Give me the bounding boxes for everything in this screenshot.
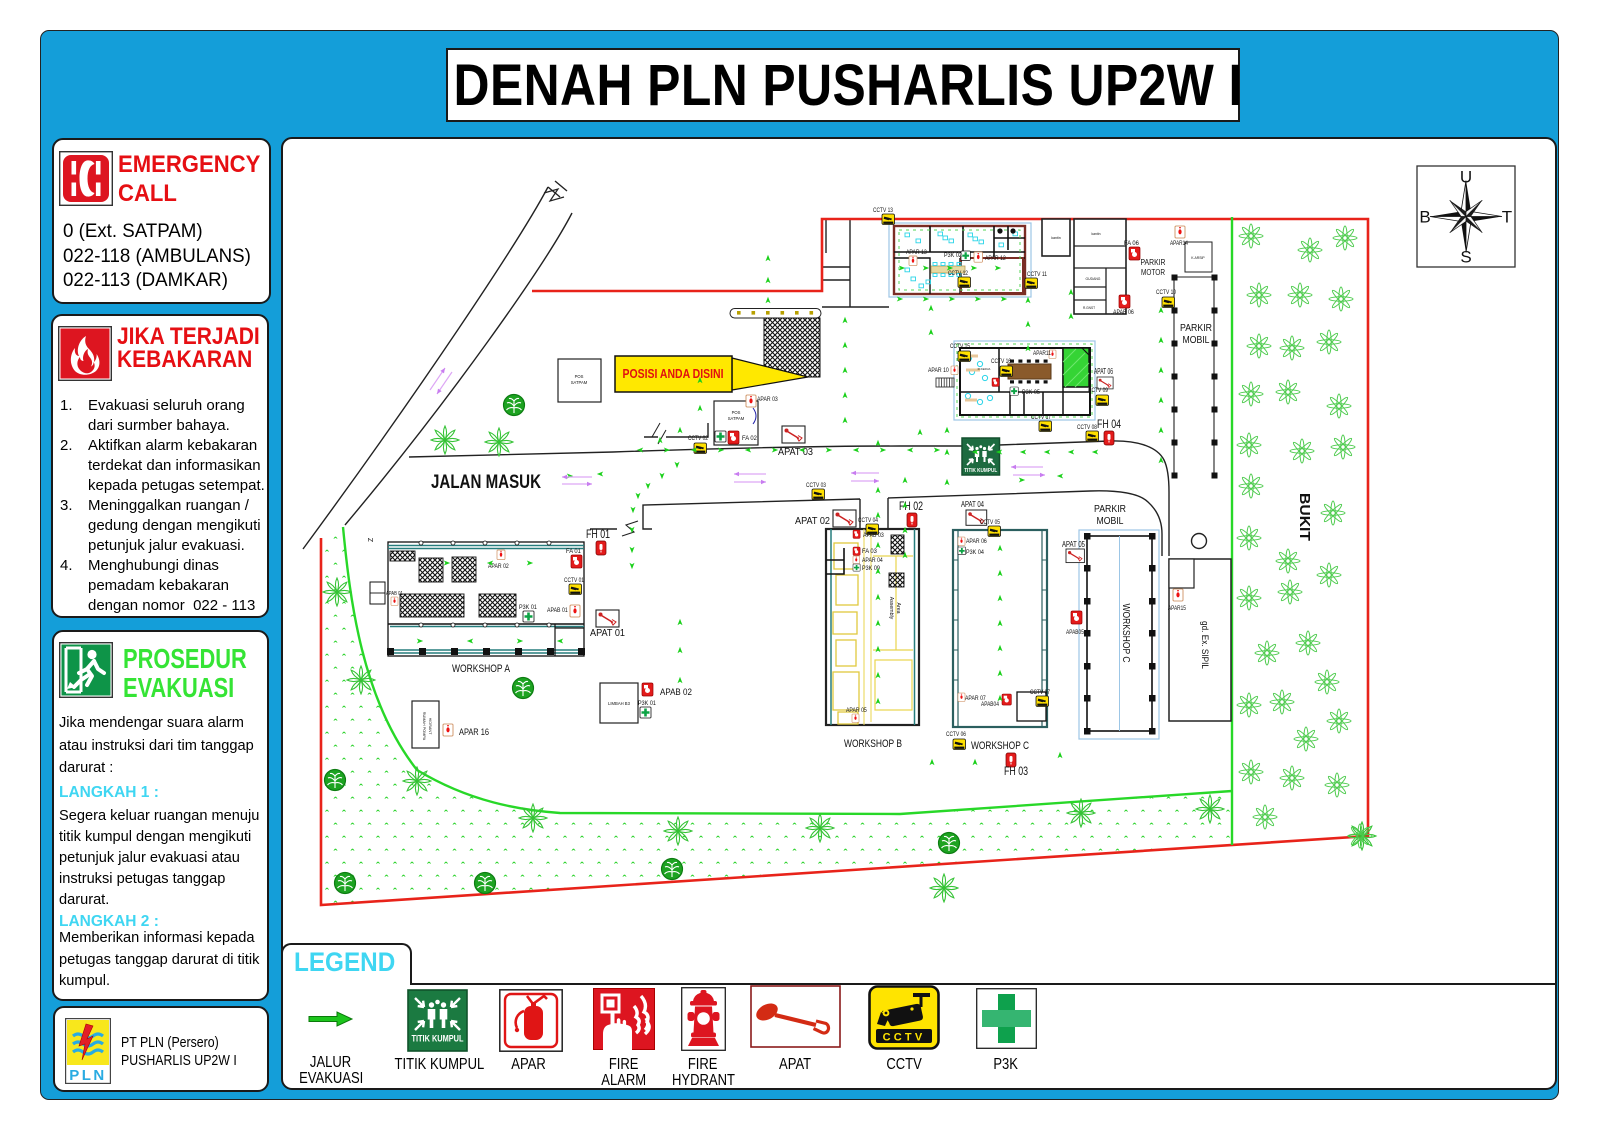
svg-text:T: T xyxy=(1502,208,1512,227)
svg-text:gd. Ex. SIPIL: gd. Ex. SIPIL xyxy=(1200,621,1210,669)
svg-text:APAR 12: APAR 12 xyxy=(985,255,1006,262)
svg-text:TITIK KUMPUL: TITIK KUMPUL xyxy=(412,1034,464,1045)
svg-text:FA 06: FA 06 xyxy=(1124,240,1139,247)
svg-text:GUDANG: GUDANG xyxy=(1086,277,1101,281)
svg-text:PARKIR: PARKIR xyxy=(1094,504,1126,515)
svg-text:APAB04: APAB04 xyxy=(981,701,999,708)
svg-text:MOTOR: MOTOR xyxy=(1141,267,1165,277)
svg-text:APAR 04: APAR 04 xyxy=(862,557,883,564)
svg-text:PLN: PLN xyxy=(69,1067,107,1084)
svg-text:APAR 16: APAR 16 xyxy=(459,727,489,738)
svg-text:CCTV 05: CCTV 05 xyxy=(980,520,1001,526)
svg-text:APAR 05: APAR 05 xyxy=(846,707,867,714)
svg-text:CCTV 01: CCTV 01 xyxy=(564,578,585,584)
svg-text:CCTV 03: CCTV 03 xyxy=(806,483,827,489)
svg-text:FH 01: FH 01 xyxy=(586,527,610,541)
svg-text:APAT 04: APAT 04 xyxy=(961,500,984,509)
svg-text:SATPAM: SATPAM xyxy=(571,380,588,385)
svg-text:CCTV 07: CCTV 07 xyxy=(1030,690,1051,696)
svg-text:MOBIL: MOBIL xyxy=(1097,516,1124,527)
svg-text:CCTV 12: CCTV 12 xyxy=(948,271,969,277)
svg-text:CCTV 15: CCTV 15 xyxy=(950,344,971,350)
svg-text:PARKIR: PARKIR xyxy=(1180,323,1212,334)
svg-text:APAR 03: APAR 03 xyxy=(757,396,778,403)
svg-text:APAB 02: APAB 02 xyxy=(660,687,692,698)
svg-text:APAB 06: APAB 06 xyxy=(1113,309,1134,316)
svg-text:FH 04: FH 04 xyxy=(1097,417,1121,431)
svg-text:CCTV 06: CCTV 06 xyxy=(946,732,967,738)
svg-text:APAR 06: APAR 06 xyxy=(966,538,987,545)
svg-text:P3K 02: P3K 02 xyxy=(944,252,962,259)
svg-text:WORKSHOP C: WORKSHOP C xyxy=(971,740,1029,752)
svg-text:FH 02: FH 02 xyxy=(899,499,923,513)
svg-text:FA 02: FA 02 xyxy=(742,435,757,442)
svg-text:Area: Area xyxy=(895,603,901,614)
svg-text:CCTV 10: CCTV 10 xyxy=(1156,290,1177,296)
svg-text:CCTV 16: CCTV 16 xyxy=(991,359,1012,365)
svg-text:B: B xyxy=(1419,208,1430,227)
svg-text:FA 01: FA 01 xyxy=(566,548,581,555)
svg-text:TITIK KUMPUL: TITIK KUMPUL xyxy=(964,468,998,474)
svg-text:APAB 03: APAB 03 xyxy=(863,532,884,539)
svg-text:P3K 05: P3K 05 xyxy=(1022,389,1040,396)
svg-text:RUMAH POMPA: RUMAH POMPA xyxy=(422,712,426,741)
svg-text:P3K 04: P3K 04 xyxy=(966,549,984,556)
svg-text:APAR15: APAR15 xyxy=(1168,605,1186,612)
svg-text:kantin: kantin xyxy=(1091,232,1100,236)
svg-text:APAT 05: APAT 05 xyxy=(1062,540,1085,549)
svg-text:kantin: kantin xyxy=(1051,236,1061,240)
svg-text:R.KERJA: R.KERJA xyxy=(978,367,991,371)
svg-text:CCTV 11: CCTV 11 xyxy=(1027,272,1048,278)
svg-text:Assembly: Assembly xyxy=(888,597,894,620)
svg-text:SATPAM: SATPAM xyxy=(728,416,745,421)
svg-text:CCTV 09: CCTV 09 xyxy=(1088,388,1109,394)
svg-text:APAB05: APAB05 xyxy=(1066,629,1084,636)
svg-text:HIDRANT: HIDRANT xyxy=(428,718,432,736)
svg-text:FA 03: FA 03 xyxy=(862,548,877,555)
svg-text:P3K 01: P3K 01 xyxy=(638,700,656,707)
svg-text:APAR 10: APAR 10 xyxy=(928,367,949,374)
svg-text:CCTV 08: CCTV 08 xyxy=(1077,425,1098,431)
svg-text:BUKIT: BUKIT xyxy=(1296,493,1313,541)
svg-text:K.ARSIP: K.ARSIP xyxy=(1191,256,1205,260)
svg-text:WORKSHOP A: WORKSHOP A xyxy=(452,663,511,675)
svg-text:APAR 13: APAR 13 xyxy=(906,249,927,256)
svg-text:MOBIL: MOBIL xyxy=(1183,335,1210,346)
svg-text:CCTV 04: CCTV 04 xyxy=(858,518,879,524)
svg-text:LIMBAH B3: LIMBAH B3 xyxy=(608,701,631,706)
svg-text:P3K 01: P3K 01 xyxy=(519,604,537,611)
svg-text:POSISI ANDA DISINI: POSISI ANDA DISINI xyxy=(623,367,724,381)
svg-text:FH 03: FH 03 xyxy=(1004,764,1028,778)
svg-text:CCTV 17: CCTV 17 xyxy=(1031,415,1052,421)
svg-text:APAB 01: APAB 01 xyxy=(386,591,403,597)
svg-text:APAT 06: APAT 06 xyxy=(1094,367,1113,376)
svg-text:APAT 02: APAT 02 xyxy=(795,515,830,527)
svg-text:PARKIR: PARKIR xyxy=(1141,257,1166,267)
svg-text:Z: Z xyxy=(368,537,375,542)
svg-text:CCTV 13: CCTV 13 xyxy=(873,208,894,214)
svg-text:APAT 03: APAT 03 xyxy=(778,446,813,458)
svg-text:APAB 01: APAB 01 xyxy=(547,607,568,614)
svg-text:APAT 01: APAT 01 xyxy=(590,627,625,639)
svg-text:CCTV: CCTV xyxy=(883,1032,926,1044)
svg-text:APAR14: APAR14 xyxy=(1170,240,1188,247)
svg-text:APAR11: APAR11 xyxy=(1033,350,1051,357)
svg-text:POS: POS xyxy=(732,410,741,415)
svg-text:POS: POS xyxy=(575,374,584,379)
svg-text:CCTV 02: CCTV 02 xyxy=(688,436,709,442)
svg-text:R.GNST: R.GNST xyxy=(1083,306,1095,310)
svg-text:JALAN MASUK: JALAN MASUK xyxy=(431,472,541,493)
svg-text:WORKSHOP B: WORKSHOP B xyxy=(844,738,902,750)
svg-text:WORKSHOP C: WORKSHOP C xyxy=(1120,604,1131,663)
